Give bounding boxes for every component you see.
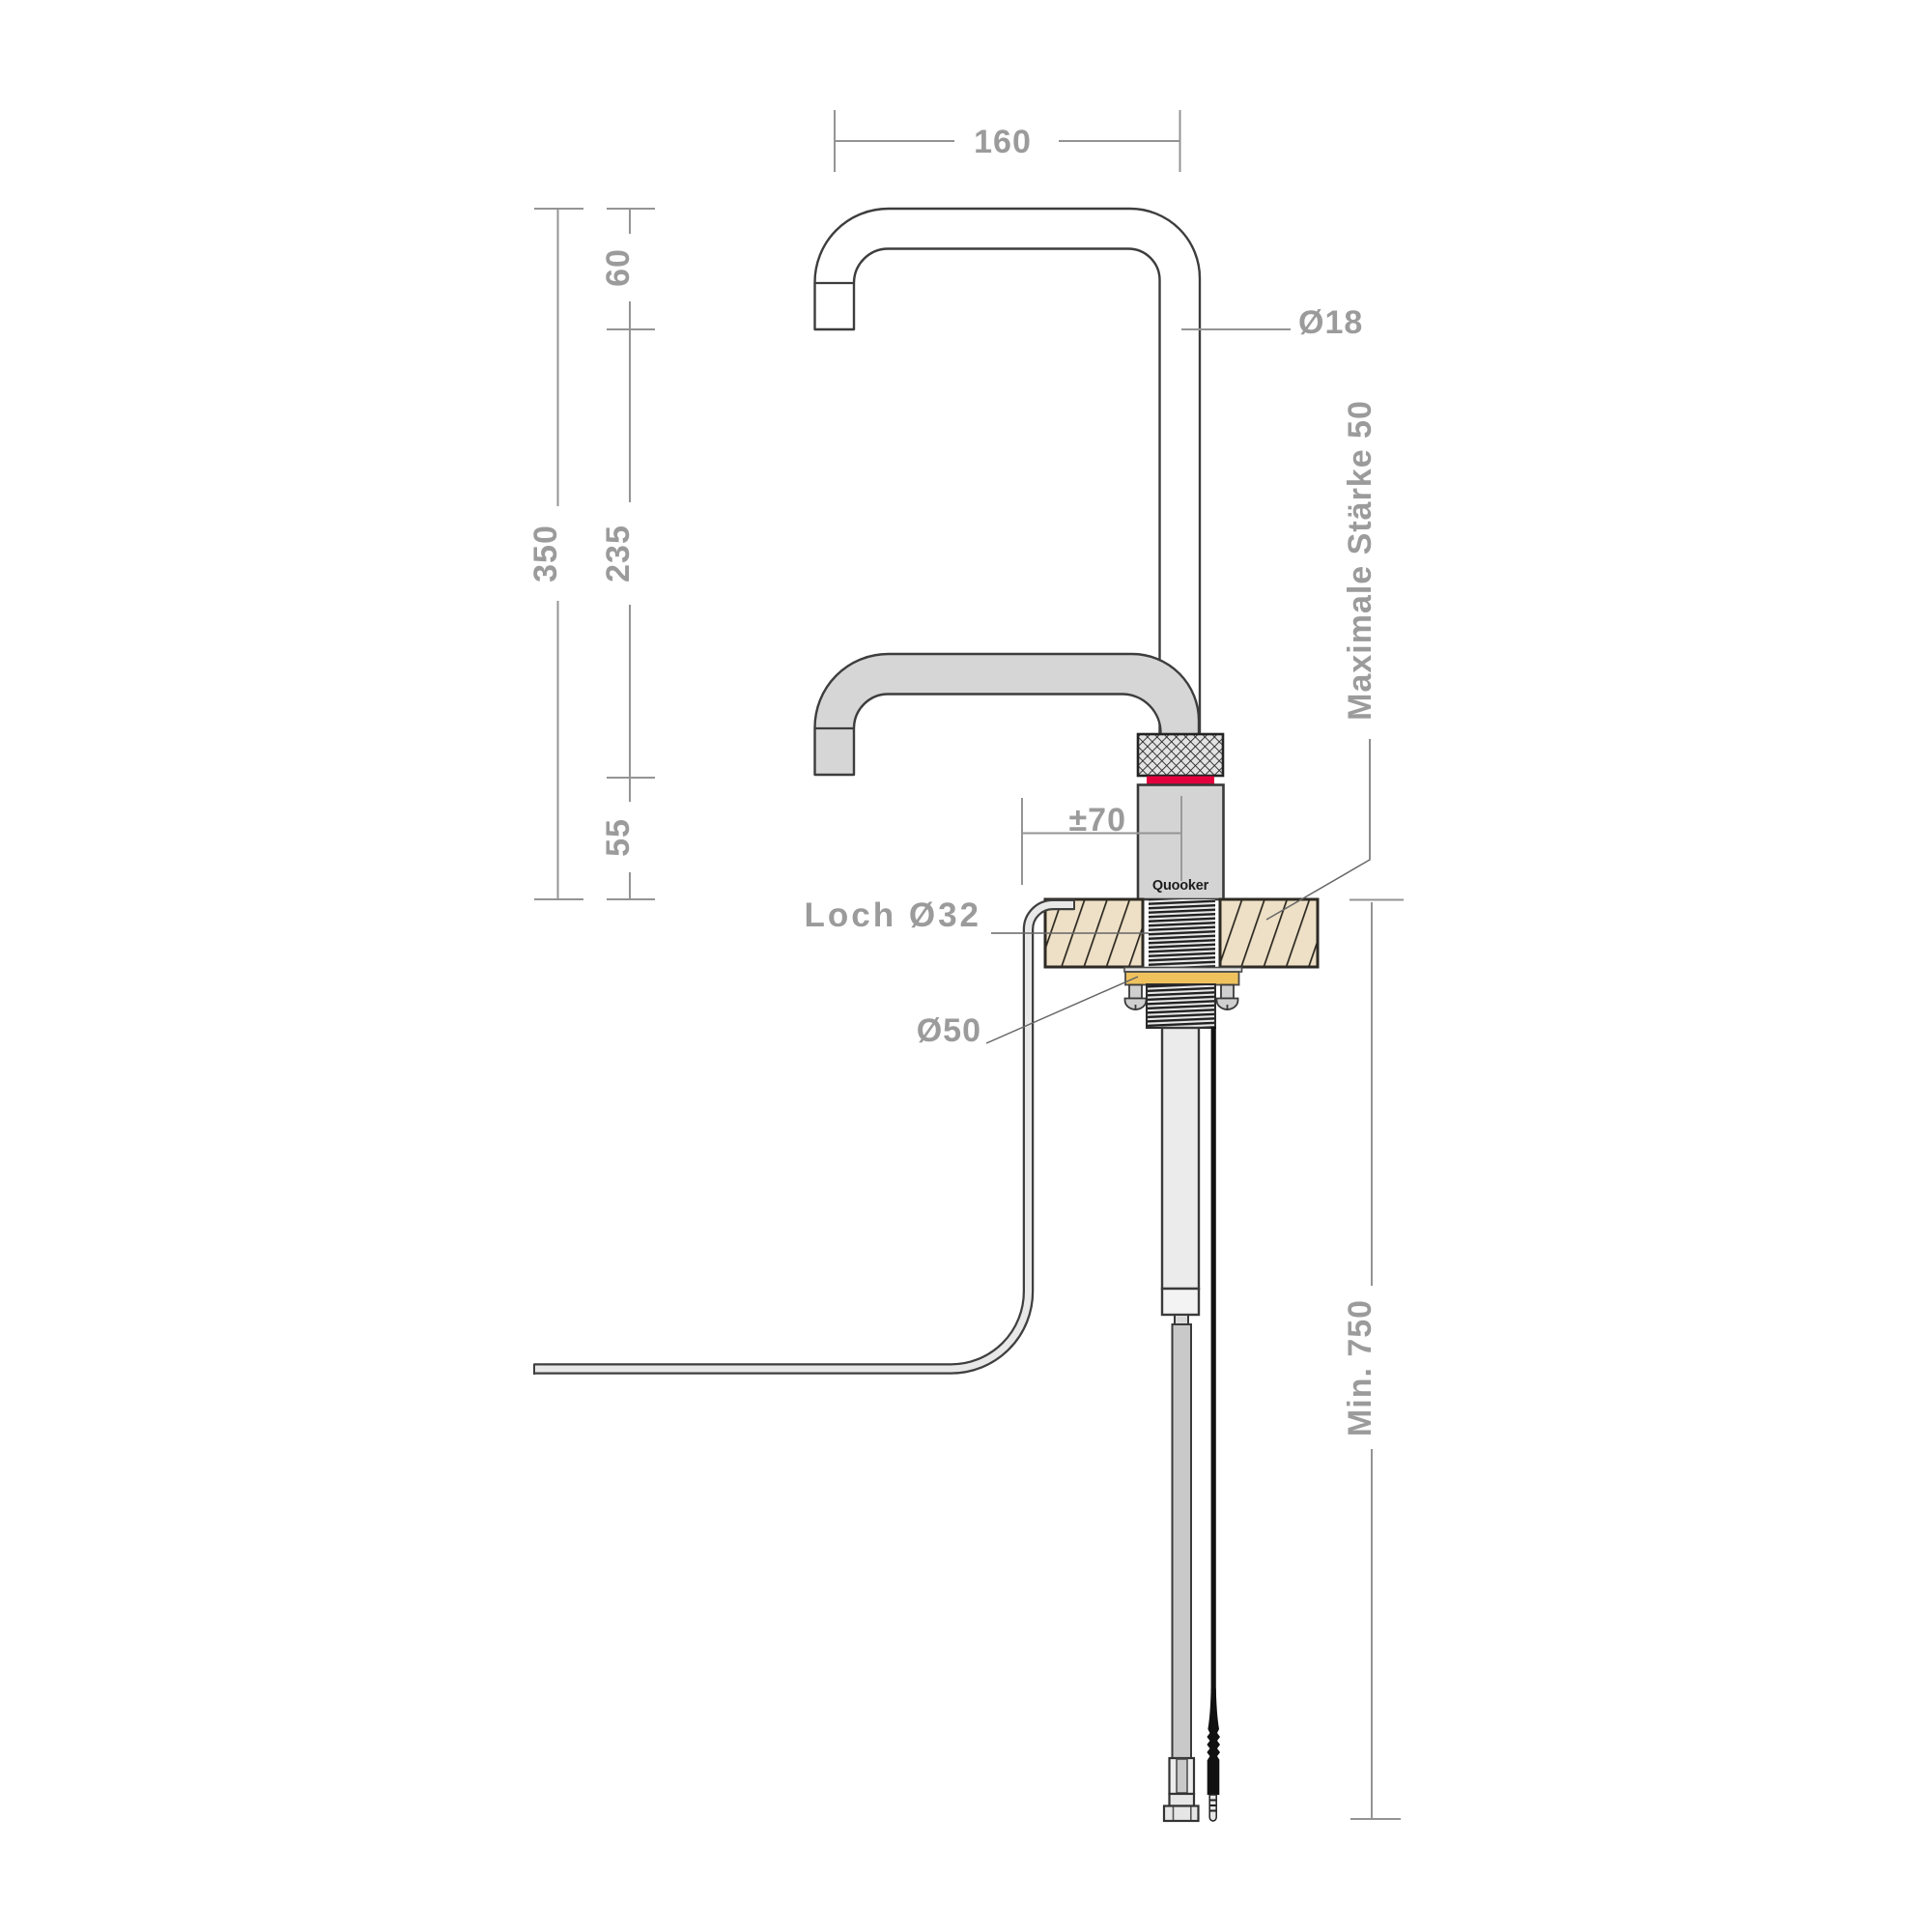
- svg-text:350: 350: [527, 525, 564, 582]
- svg-text:235: 235: [600, 525, 637, 582]
- svg-text:Loch Ø32: Loch Ø32: [805, 896, 981, 934]
- svg-text:160: 160: [974, 124, 1032, 160]
- svg-text:Ø18: Ø18: [1298, 304, 1363, 341]
- svg-text:Quooker: Quooker: [1152, 878, 1209, 894]
- svg-text:Maximale Stärke 50: Maximale Stärke 50: [1342, 400, 1378, 721]
- svg-text:60: 60: [600, 248, 637, 287]
- svg-text:±70: ±70: [1069, 802, 1126, 838]
- svg-text:55: 55: [600, 818, 637, 857]
- svg-text:Ø50: Ø50: [917, 1012, 981, 1049]
- svg-text:Min. 750: Min. 750: [1342, 1299, 1378, 1436]
